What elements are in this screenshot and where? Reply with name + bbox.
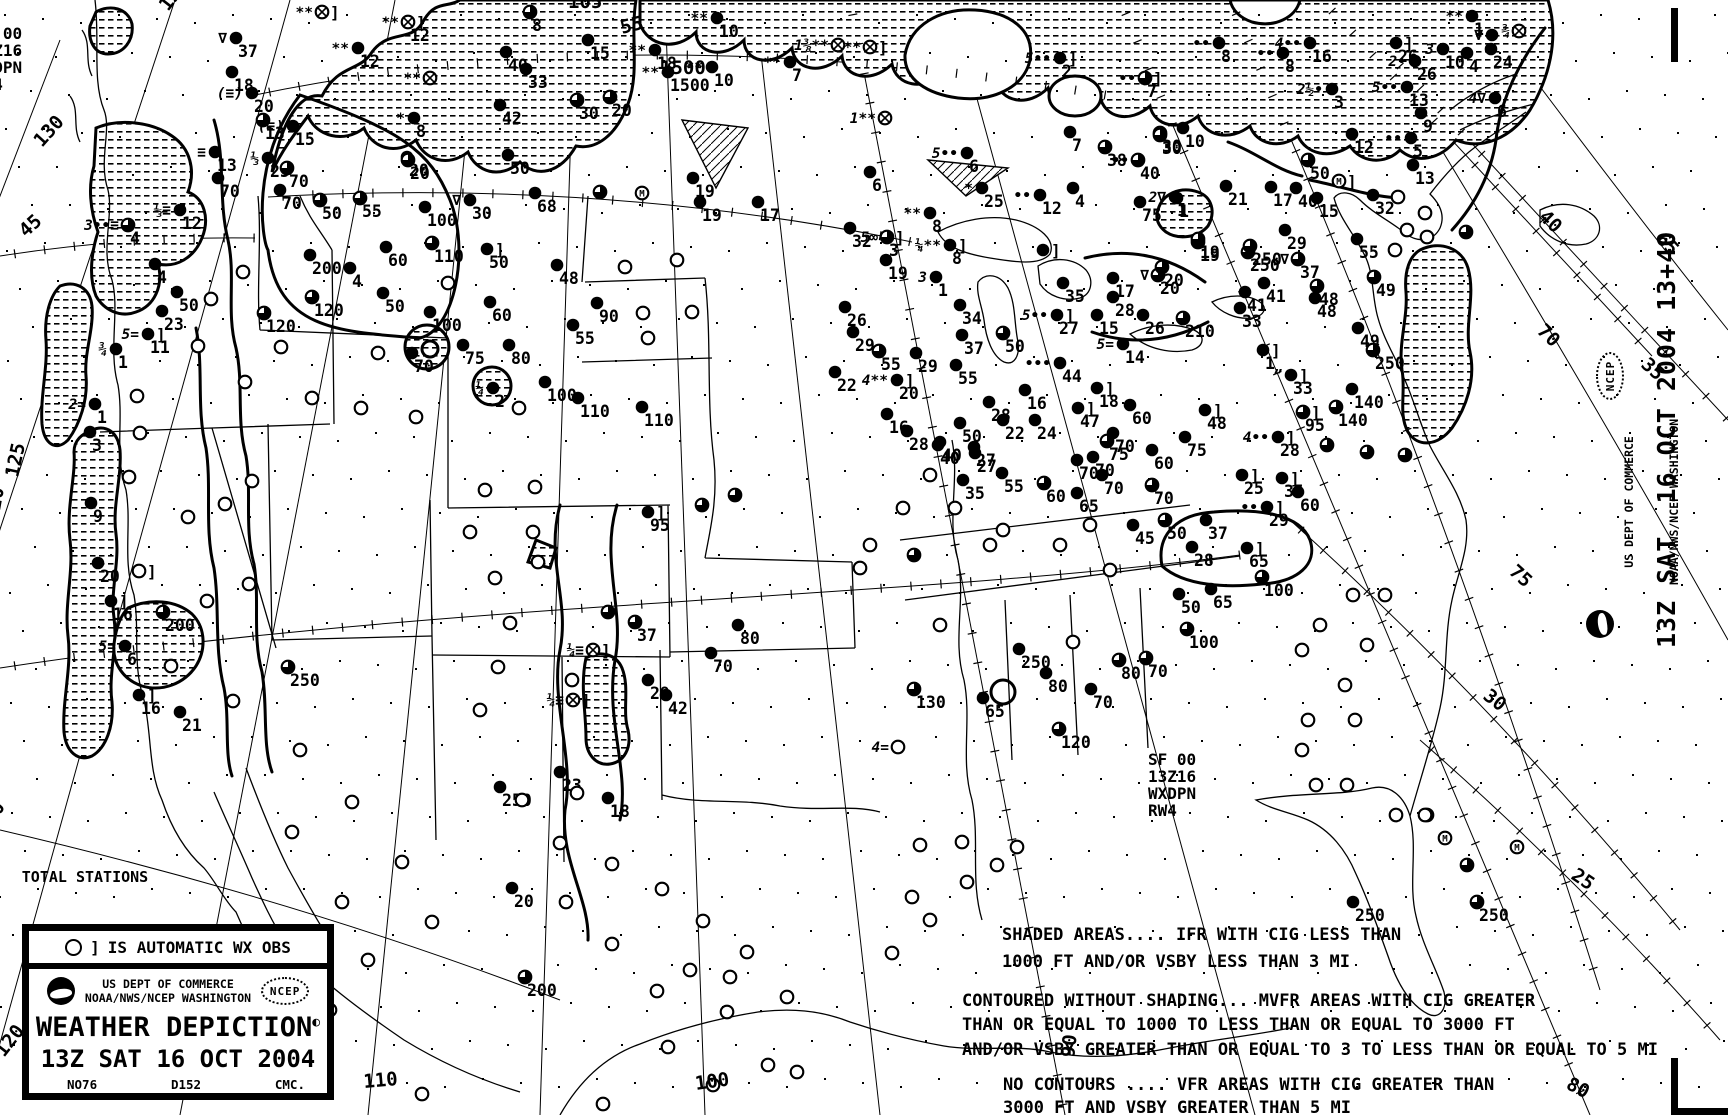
station-plot	[426, 916, 439, 929]
station-plot	[1310, 779, 1323, 792]
station-plot: 60	[1038, 477, 1066, 506]
svg-text:22: 22	[1005, 424, 1025, 443]
station-plot: 75	[457, 339, 485, 368]
station-plot	[684, 964, 697, 977]
svg-text:6: 6	[1497, 102, 1507, 121]
station-plot	[1379, 589, 1392, 602]
product-title: WEATHER DEPICTION◐	[29, 1012, 327, 1043]
station-plot: 50	[954, 417, 982, 446]
svg-text:16: 16	[141, 699, 161, 718]
svg-text:2: 2	[1062, 62, 1072, 81]
svg-text:5: 5	[1413, 142, 1423, 161]
graticule-label: 80	[1563, 1073, 1594, 1103]
svg-text:**: **	[764, 55, 781, 71]
svg-text:10: 10	[719, 22, 739, 41]
svg-text:250: 250	[1355, 906, 1385, 925]
station-plot: 250	[282, 661, 320, 690]
svg-text:250: 250	[290, 671, 320, 690]
station-plot	[1389, 244, 1402, 257]
auto-obs-row: ]IS AUTOMATIC WX OBS	[29, 931, 327, 969]
svg-text:7: 7	[1072, 136, 1082, 155]
station-plot	[597, 1098, 610, 1111]
svg-text:37: 37	[1208, 524, 1228, 543]
svg-text:33: 33	[1293, 379, 1313, 398]
svg-text:9: 9	[93, 507, 103, 526]
svg-text:28: 28	[1280, 441, 1300, 460]
station-plot	[492, 661, 505, 674]
svg-text:3: 3	[1424, 42, 1434, 58]
svg-text:110: 110	[644, 411, 674, 430]
svg-text:17: 17	[1273, 191, 1293, 210]
svg-text:11: 11	[150, 338, 170, 357]
station-plot	[619, 261, 632, 274]
station-plot	[566, 674, 579, 687]
station-plot: 26	[839, 301, 867, 330]
station-plot: 50	[314, 194, 342, 223]
station-plot: ••40	[1112, 153, 1160, 183]
station-plot	[219, 498, 232, 511]
svg-text:35: 35	[1065, 287, 1085, 306]
station-plot	[697, 915, 710, 928]
svg-text:55: 55	[1359, 243, 1379, 262]
station-plot: 37	[956, 329, 984, 358]
svg-text:”: ”	[1273, 368, 1282, 384]
station-plot: ∇30	[451, 193, 492, 223]
station-plot	[182, 511, 195, 524]
svg-text:3: 3	[92, 436, 102, 455]
svg-text:¼: ¼	[475, 381, 484, 397]
station-plot: 50	[1173, 588, 1201, 617]
svg-text:28: 28	[1194, 551, 1214, 570]
station-plot	[1054, 539, 1067, 552]
svg-text:49: 49	[1376, 281, 1396, 300]
svg-text:35: 35	[965, 484, 985, 503]
station-plot: ]	[1037, 241, 1061, 260]
station-plot	[306, 392, 319, 405]
station-plot: 140	[1346, 383, 1384, 412]
svg-text:7: 7	[792, 66, 802, 85]
svg-text:15: 15	[1099, 319, 1119, 338]
svg-text:*: *	[964, 181, 973, 197]
station-plot: 110	[572, 392, 610, 421]
svg-text:70: 70	[289, 172, 309, 191]
graticule-label: 125	[155, 0, 193, 15]
station-plot: 17	[1265, 181, 1293, 210]
svg-text:20: 20	[514, 892, 534, 911]
svg-text:19: 19	[702, 206, 722, 225]
svg-text:100: 100	[432, 316, 462, 335]
station-plot	[637, 307, 650, 320]
side-noaa-logo-icon	[1586, 610, 1614, 638]
station-plot: 68	[529, 187, 557, 216]
station-plot	[554, 837, 567, 850]
svg-text:70: 70	[1148, 662, 1168, 681]
mvfr-contours	[196, 28, 1545, 940]
station-plot	[442, 277, 455, 290]
svg-text:50: 50	[1181, 598, 1201, 617]
station-plot: 26	[1137, 309, 1165, 338]
corner-id-block: SF 00 13Z16 WXDPN RW4	[0, 26, 22, 94]
svg-text:17: 17	[760, 206, 780, 225]
svg-text:110: 110	[434, 247, 464, 266]
svg-text:20: 20	[1164, 271, 1184, 290]
station-plot: 30	[1154, 129, 1182, 158]
station-plot: 35	[957, 474, 985, 503]
svg-text:1: 1	[118, 353, 128, 372]
svg-text:M: M	[1514, 844, 1520, 854]
svg-text:3••≡: 3••≡	[83, 218, 119, 234]
station-plot	[131, 390, 144, 403]
svg-text:130: 130	[916, 693, 946, 712]
svg-text:29: 29	[1287, 234, 1307, 253]
svg-text:60: 60	[1132, 409, 1152, 428]
obs-text: IS AUTOMATIC WX OBS	[108, 938, 291, 957]
station-plot: 13	[1407, 159, 1435, 188]
svg-text:60: 60	[1154, 454, 1174, 473]
title-mark-icon: ◐	[312, 1015, 320, 1030]
station-plot	[513, 402, 526, 415]
station-plot	[346, 796, 359, 809]
station-plot: 110	[636, 401, 674, 430]
station-plot	[516, 794, 529, 807]
station-plot: 34	[954, 299, 982, 328]
station-plot	[1347, 589, 1360, 602]
station-plot	[1339, 679, 1352, 692]
svg-text:45: 45	[1135, 529, 1155, 548]
station-plot	[1296, 744, 1309, 757]
svg-text:44: 44	[1062, 367, 1082, 386]
station-plot	[239, 376, 252, 389]
svg-text:16: 16	[1027, 394, 1047, 413]
svg-text:18: 18	[1099, 392, 1119, 411]
svg-text:5=: 5=	[122, 327, 140, 343]
station-plot: **]	[296, 3, 340, 22]
svg-text:26: 26	[1417, 65, 1437, 84]
svg-text:90: 90	[599, 307, 619, 326]
station-plot: 29	[847, 326, 875, 355]
station-plot	[362, 954, 375, 967]
graticule-label: 75	[1505, 560, 1537, 592]
svg-text:¾: ¾	[98, 342, 107, 358]
svg-text:4: 4	[352, 272, 362, 291]
weather-depiction-chart: { "colors": {"ink": "#000000", "paper": …	[0, 0, 1728, 1115]
legend-box: ]IS AUTOMATIC WX OBS US DEPT OF COMMERCE…	[22, 924, 334, 1100]
svg-text:2•: 2•	[1388, 54, 1406, 70]
station-plot: 42	[660, 689, 688, 718]
station-plot	[686, 306, 699, 319]
station-plot	[991, 859, 1004, 872]
shaded-note-line1: SHADED AREAS.... IFR WITH CIG LESS THAN	[1002, 925, 1401, 947]
station-plot: 250	[1471, 896, 1509, 925]
registration-mark-bottom-h	[1671, 1108, 1728, 1115]
station-plot: 1**	[850, 111, 892, 127]
svg-text:12: 12	[1354, 138, 1374, 157]
station-plot	[906, 891, 919, 904]
svg-text:40: 40	[1140, 164, 1160, 183]
ncep-logo-icon: NCEP	[261, 977, 309, 1005]
station-plot: 100	[1181, 623, 1219, 652]
svg-text:5••: 5••	[1025, 51, 1051, 67]
svg-text:12: 12	[410, 26, 430, 45]
svg-text:2=: 2=	[68, 397, 87, 413]
svg-text:70: 70	[1093, 693, 1113, 712]
svg-text:**: **	[296, 5, 313, 21]
station-plot: 29	[1279, 224, 1307, 253]
station-plot: 55	[567, 319, 595, 348]
station-plot: 60	[1124, 399, 1152, 428]
svg-text:100: 100	[1264, 581, 1294, 600]
svg-text:4**: 4**	[862, 373, 888, 389]
svg-text:M: M	[1442, 835, 1448, 845]
station-plot	[656, 883, 669, 896]
svg-text:]: ]	[601, 641, 611, 660]
station-plot: 24	[1029, 414, 1057, 443]
station-plot: 6	[864, 166, 882, 195]
svg-text:•••: •••	[1025, 356, 1051, 372]
station-plot: 4••]28	[1243, 428, 1300, 460]
station-plot	[1302, 714, 1315, 727]
svg-text:20: 20	[612, 101, 632, 120]
svg-text:]: ]	[1347, 172, 1357, 191]
svg-text:65: 65	[985, 702, 1005, 721]
svg-text:3: 3	[1334, 93, 1344, 112]
svg-text:68: 68	[537, 197, 557, 216]
svg-text:20: 20	[100, 567, 120, 586]
svg-text:∇: ∇	[1473, 28, 1483, 44]
svg-text:⅓≡: ⅓≡	[154, 203, 172, 219]
station-plot	[192, 340, 205, 353]
station-plot	[914, 839, 927, 852]
svg-text:9: 9	[1423, 117, 1433, 136]
station-plot: 28	[901, 425, 929, 454]
station-plot: 4	[1067, 182, 1085, 211]
station-plot: 5••]27	[1022, 306, 1079, 338]
svg-text:]: ]	[878, 38, 888, 57]
station-plot	[1419, 207, 1432, 220]
station-plot: 45	[1127, 519, 1155, 548]
svg-text:5••: 5••	[1372, 80, 1398, 96]
svg-text:50: 50	[385, 297, 405, 316]
station-plot	[1460, 226, 1473, 239]
station-plot	[997, 524, 1010, 537]
station-plot	[489, 572, 502, 585]
svg-text:33: 33	[528, 73, 548, 92]
station-plot: 50	[171, 286, 199, 315]
station-plot	[642, 332, 655, 345]
station-plot: 70	[1085, 683, 1113, 712]
station-plot	[671, 254, 684, 267]
graticule-label: 40	[1535, 206, 1567, 238]
station-plot	[275, 341, 288, 354]
graticule-label: 125	[1, 441, 30, 479]
svg-text:40: 40	[940, 449, 960, 468]
svg-text:42: 42	[668, 699, 688, 718]
station-plot	[1067, 636, 1080, 649]
station-plot: 50	[997, 327, 1025, 356]
station-plot: 120	[258, 307, 296, 336]
svg-text:50: 50	[510, 159, 530, 178]
obs-bracket: ]	[90, 938, 100, 957]
station-plot: 5=]11	[122, 325, 170, 357]
svg-text:]: ]	[1051, 241, 1061, 260]
svg-text:65: 65	[1249, 552, 1269, 571]
graticule-label: 130	[29, 111, 68, 151]
station-plot	[286, 826, 299, 839]
svg-text:29: 29	[855, 336, 875, 355]
svg-text:50: 50	[489, 253, 509, 272]
svg-text:3: 3	[917, 270, 927, 286]
svg-text:110: 110	[580, 402, 610, 421]
svg-text:1**: 1**	[850, 111, 876, 127]
svg-text:1: 1	[1179, 202, 1189, 221]
svg-text:19: 19	[888, 264, 908, 283]
svg-text:8: 8	[416, 122, 426, 141]
side-ncep-logo-icon: NCEP	[1596, 352, 1624, 400]
station-plot	[651, 985, 664, 998]
station-plot	[594, 186, 607, 199]
svg-text:30: 30	[579, 104, 599, 123]
svg-text:55: 55	[1004, 477, 1024, 496]
station-plot	[1011, 841, 1024, 854]
svg-text:48: 48	[1207, 414, 1227, 433]
station-plot	[1361, 446, 1374, 459]
svg-text:100: 100	[427, 211, 457, 230]
svg-text:••: ••	[1241, 500, 1258, 516]
svg-text:140: 140	[1338, 411, 1368, 430]
svg-text:70: 70	[414, 357, 434, 376]
svg-text:4••: 4••	[1275, 36, 1301, 52]
station-plot	[560, 896, 573, 909]
svg-text:250: 250	[1375, 354, 1405, 373]
vfr-note-line1: NO CONTOURS .... VFR AREAS WITH CIG GREA…	[1003, 1075, 1494, 1097]
svg-text:70: 70	[713, 657, 733, 676]
station-plot: ¼≡]	[547, 691, 591, 710]
svg-text:200: 200	[312, 259, 342, 278]
station-plot	[1314, 619, 1327, 632]
station-plot	[741, 946, 754, 959]
station-plot	[1296, 644, 1309, 657]
station-plot: ]25	[1236, 466, 1264, 498]
graticule-label: 105	[568, 0, 602, 13]
graticule-label: 100	[694, 1068, 731, 1095]
svg-text:210: 210	[1185, 322, 1215, 341]
station-plot: 100	[539, 376, 577, 405]
svg-text:*: *	[396, 111, 405, 127]
svg-text:55: 55	[575, 329, 595, 348]
station-plot	[1341, 779, 1354, 792]
svg-text:10: 10	[1185, 132, 1205, 151]
registration-mark-bottom-v	[1671, 1058, 1678, 1115]
svg-text:20: 20	[410, 164, 430, 183]
svg-text:∇: ∇	[217, 31, 227, 47]
station-plot: •••44	[1025, 356, 1082, 386]
svg-text:16: 16	[1312, 47, 1332, 66]
station-plot	[1399, 449, 1412, 462]
svg-text:12: 12	[182, 214, 202, 233]
station-plot	[532, 556, 545, 569]
svg-text:65: 65	[1079, 497, 1099, 516]
svg-text:25: 25	[984, 192, 1004, 211]
station-plot: 4**]20	[862, 371, 919, 403]
station-plot: 4	[344, 262, 362, 291]
station-plot: ]16	[133, 686, 161, 718]
registration-mark-top	[1671, 8, 1678, 62]
svg-text:••: ••	[1257, 46, 1274, 62]
station-plot	[504, 617, 517, 630]
station-plot: 200	[519, 971, 557, 1000]
station-plot	[956, 836, 969, 849]
station-plot	[237, 266, 250, 279]
station-plot	[1361, 639, 1374, 652]
svg-text:48: 48	[1319, 290, 1339, 309]
svg-text:26: 26	[1145, 319, 1165, 338]
svg-text:4=: 4=	[872, 740, 890, 756]
svg-text:75: 75	[1109, 445, 1129, 464]
svg-text:∇: ∇	[1279, 252, 1289, 268]
svg-text:10: 10	[714, 71, 734, 90]
svg-text:5••: 5••	[1022, 308, 1048, 324]
svg-text:4: 4	[1469, 57, 1479, 76]
svg-text:34: 34	[962, 309, 982, 328]
svg-text:**: **	[1446, 9, 1463, 25]
station-plot: 70	[212, 172, 240, 201]
svg-text:60: 60	[1300, 496, 1320, 515]
svg-text:5=: 5=	[1097, 337, 1115, 353]
svg-text:50: 50	[322, 204, 342, 223]
station-plot: 75	[1179, 431, 1207, 460]
station-plot	[934, 619, 947, 632]
svg-text:5••: 5••	[932, 146, 958, 162]
svg-text:2½•: 2½•	[1296, 82, 1323, 98]
svg-text:28: 28	[1115, 301, 1135, 320]
station-plot: 55	[1351, 233, 1379, 262]
svg-text:33: 33	[1242, 312, 1262, 331]
station-plot: 60	[484, 296, 512, 325]
shaded-note-line2: 1000 FT AND/OR VSBY LESS THAN 3 MI	[1002, 952, 1350, 974]
agency-line1: US DEPT OF COMMERCE	[85, 977, 251, 991]
svg-text:**: **	[404, 71, 421, 87]
station-plot	[781, 991, 794, 1004]
station-plot	[165, 660, 178, 673]
svg-text:8: 8	[932, 217, 942, 236]
code-no76: NO76	[67, 1077, 97, 1092]
svg-text:37: 37	[964, 339, 984, 358]
svg-text:4: 4	[1075, 192, 1085, 211]
station-plot	[924, 469, 937, 482]
svg-text:(≡): (≡)	[258, 119, 284, 135]
svg-text:¼**: ¼**	[915, 238, 941, 254]
station-plot: 250	[1367, 344, 1405, 373]
note-line1: TOTAL STATIONS	[0, 862, 170, 892]
noaa-logo-icon	[47, 977, 75, 1005]
svg-text:27: 27	[977, 457, 997, 476]
svg-text:80: 80	[1121, 664, 1141, 683]
station-plot: **	[404, 71, 437, 87]
svg-text:]: ]	[330, 3, 340, 22]
station-plot: 1⅜**	[794, 38, 844, 54]
svg-text:16: 16	[113, 605, 133, 624]
station-plot	[606, 938, 619, 951]
svg-text:50: 50	[1005, 337, 1025, 356]
svg-text:¼≡: ¼≡	[567, 643, 585, 659]
station-plot: ]50	[481, 240, 509, 272]
svg-text:8: 8	[532, 16, 542, 35]
station-plot: 80	[503, 339, 531, 368]
svg-text:≡: ≡	[197, 145, 206, 161]
station-plot: 200	[304, 249, 342, 278]
station-plot	[396, 856, 409, 869]
station-plot: 60	[1146, 444, 1174, 473]
